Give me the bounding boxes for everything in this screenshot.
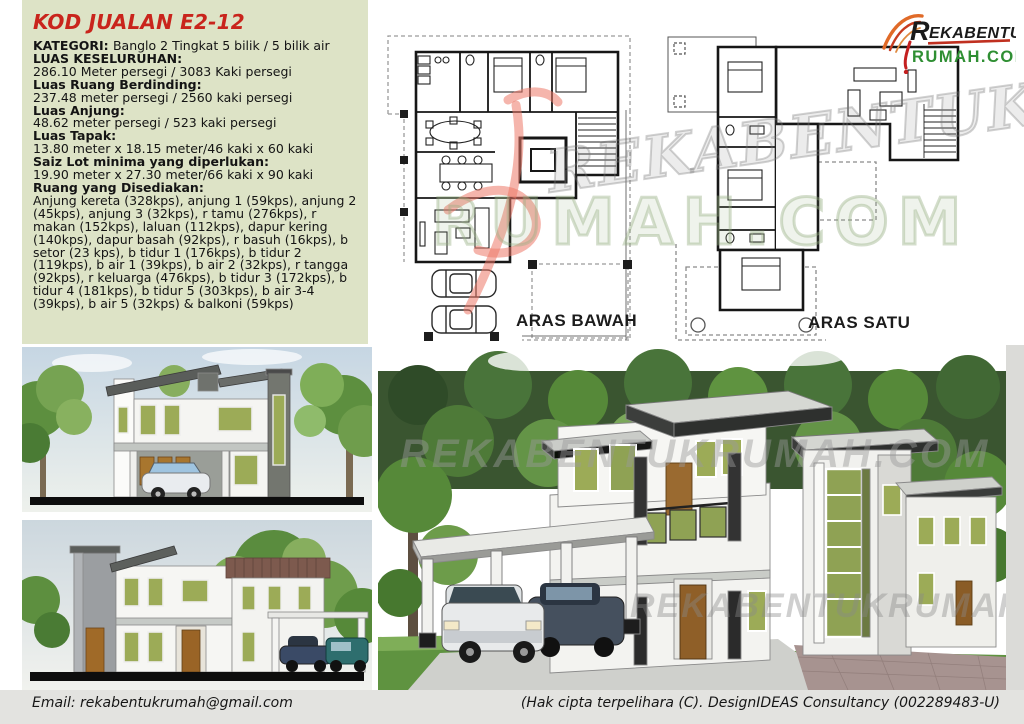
footer-email: Email: rekabentukrumah@gmail.com — [32, 695, 293, 711]
rekabentuk-rumah-logo: R EKABENTUK RUMAH.COM — [876, 8, 1016, 74]
spec-luas-berdinding: Luas Ruang Berdinding:237.48 meter perse… — [33, 79, 358, 105]
spec-panel: KOD JUALAN E2-12 KATEGORI: Banglo 2 Ting… — [22, 0, 368, 344]
render-watermark: REKABENTUKRUMAH.COM — [400, 432, 990, 476]
plan-label-aras-bawah: ARAS BAWAH — [516, 311, 637, 330]
spec-luas-keseluruhan: LUAS KESELURUHAN:286.10 Meter persegi / … — [33, 53, 358, 79]
footer-copyright: (Hak cipta terpelihara (C). DesignIDEAS … — [521, 695, 1000, 711]
elevation-front-render — [22, 347, 372, 512]
footer-bar: Email: rekabentukrumah@gmail.com (Hak ci… — [0, 690, 1024, 724]
spec-luas-tapak: Luas Tapak:13.80 meter x 18.15 meter/46 … — [33, 130, 358, 156]
logo-rumahcom-text: RUMAH.COM — [912, 48, 1016, 66]
brochure-page: KOD JUALAN E2-12 KATEGORI: Banglo 2 Ting… — [0, 0, 1024, 724]
svg-text:R: R — [910, 16, 930, 46]
render-watermark: REKABENTUKRUMAH.COM — [630, 587, 1006, 625]
spec-luas-anjung: Luas Anjung:48.62 meter persegi / 523 ka… — [33, 105, 358, 131]
spec-ruang-disediakan: Ruang yang Disediakan:Anjung kereta (328… — [33, 182, 358, 311]
page-margin-strip — [1006, 345, 1024, 690]
elevation-side-render — [22, 520, 372, 690]
sale-code-title: KOD JUALAN E2-12 — [33, 10, 358, 34]
plan-label-aras-satu: ARAS SATU — [808, 313, 910, 332]
spec-saiz-lot: Saiz Lot minima yang diperlukan:19.90 me… — [33, 156, 358, 182]
perspective-render: REKABENTUKRUMAH.COM REKABENTUKRUMAH.COM — [378, 345, 1006, 690]
